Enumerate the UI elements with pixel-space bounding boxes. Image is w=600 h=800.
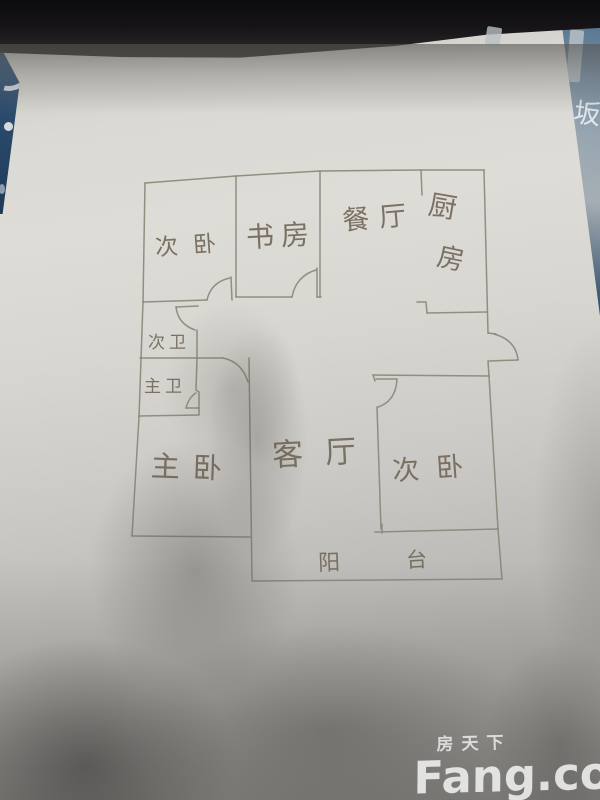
label-balcony-char2: 台 xyxy=(405,547,427,572)
label-kitchen-char1: 厨 xyxy=(426,188,459,225)
wall-balcony-right xyxy=(498,529,502,579)
label-bath-master: 主卫 xyxy=(144,377,186,397)
wall-bathM-right xyxy=(196,358,199,414)
entrance-door-leaf xyxy=(489,360,518,361)
study-door-arc xyxy=(292,270,316,297)
wall-kitchen-bottom xyxy=(427,312,487,313)
bedroomBR-door-arc xyxy=(378,379,397,407)
entrance-door-arc xyxy=(494,334,518,360)
label-bedroom-master: 主卧 xyxy=(150,449,235,486)
wall-left-upper xyxy=(143,183,145,302)
wall-left-master xyxy=(132,417,139,536)
bedroomTL-door-arc xyxy=(207,278,230,300)
bath2-door-leaf xyxy=(176,306,198,307)
wall-bedroomBR-bottom xyxy=(375,529,498,532)
bedroomTL-door-leaf xyxy=(231,277,232,300)
wall-left-mid xyxy=(139,302,143,417)
floorplan-photo: 坂 xyxy=(0,0,600,800)
wall-kitchen-bottom-stub xyxy=(417,302,427,313)
wall-bedroomBR-top xyxy=(373,375,489,376)
label-bath-second: 次卫 xyxy=(148,333,190,353)
label-kitchen-char2: 房 xyxy=(434,241,467,277)
wall-right-stub xyxy=(488,361,489,376)
wall-bathM-bottom xyxy=(139,415,199,416)
wall-bedroomBR-right xyxy=(489,376,498,529)
floorplan-drawing: 次卧 书房 餐厅 厨 房 次卫 主卫 主卧 客厅 次卧 阳 台 xyxy=(0,0,600,800)
wall-bedroomTL-bottom xyxy=(143,300,207,302)
label-dining: 餐厅 xyxy=(341,200,417,237)
wall-living-master xyxy=(249,358,252,581)
label-bedroom-right: 次卧 xyxy=(391,450,481,487)
wall-master-bottom xyxy=(132,536,250,537)
master-door-arc xyxy=(223,358,248,382)
wall-right-upper xyxy=(484,170,488,333)
wall-kitchen-left-stub xyxy=(421,170,422,195)
bath2-door-arc xyxy=(176,307,195,330)
wall-top xyxy=(145,170,484,183)
label-balcony-char1: 阳 xyxy=(318,551,341,577)
label-living: 客厅 xyxy=(271,432,379,473)
bathM-door-arc xyxy=(186,393,196,408)
watermark-logo: Fang.com xyxy=(413,750,600,800)
label-bedroom-top-left: 次卧 xyxy=(154,230,232,261)
wall-balcony-bottom xyxy=(253,579,502,581)
label-study: 书房 xyxy=(245,218,317,255)
watermark: 房天下 Fang.com xyxy=(412,725,600,800)
